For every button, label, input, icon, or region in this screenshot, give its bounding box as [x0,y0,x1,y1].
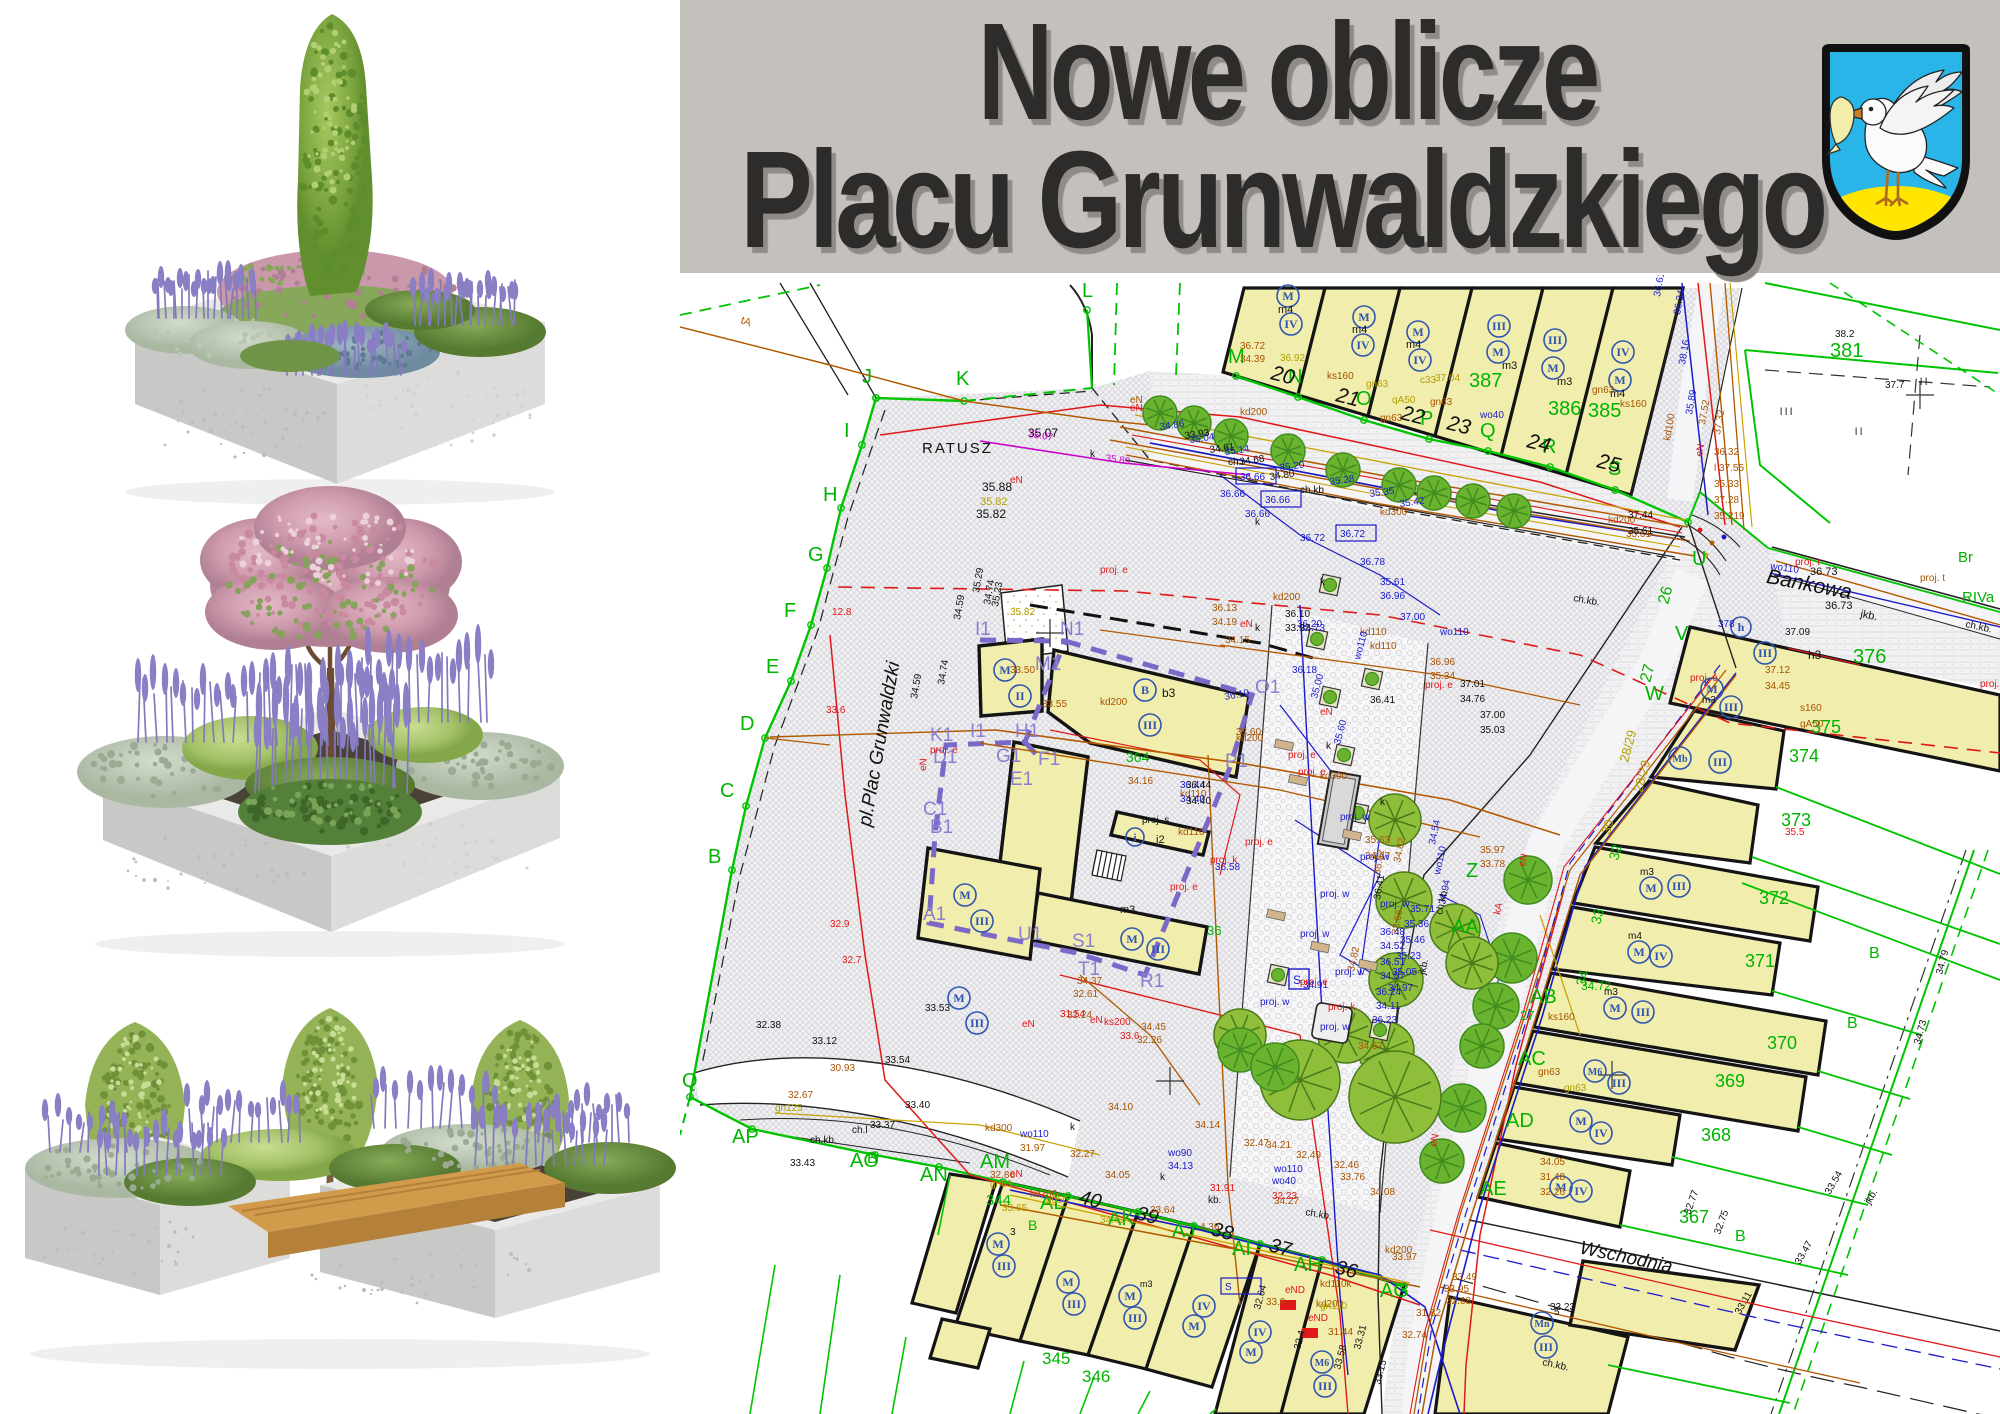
svg-text:proj. t: proj. t [1920,573,1945,584]
svg-text:proj. e: proj. e [1100,565,1128,576]
svg-text:C: C [720,780,734,802]
svg-text:33.92: 33.92 [1285,623,1310,634]
svg-text:III: III [1151,942,1165,956]
svg-text:G: G [808,544,824,566]
svg-text:346: 346 [1082,1367,1110,1386]
svg-text:36.18: 36.18 [1292,665,1317,676]
svg-text:m3: m3 [1120,904,1135,916]
svg-text:K1: K1 [930,725,953,746]
svg-text:wo110: wo110 [1019,1129,1049,1140]
svg-text:32.26: 32.26 [1137,1035,1162,1046]
svg-text:33.55: 33.55 [1042,699,1067,710]
svg-text:M1: M1 [1035,654,1061,675]
svg-text:ch.kb: ch.kb [1300,485,1324,496]
svg-text:AB: AB [1530,986,1557,1008]
svg-text:34.76: 34.76 [1460,694,1485,705]
svg-text:32.75: 32.75 [1712,1208,1731,1236]
svg-text:proj. k: proj. k [1210,855,1238,866]
svg-text:l l l: l l l [1780,407,1792,418]
svg-text:33.54: 33.54 [885,1055,910,1066]
svg-text:AN: AN [920,1164,948,1186]
svg-text:RATUSZ: RATUSZ [922,440,993,457]
svg-text:33.78: 33.78 [1480,859,1505,870]
svg-text:35.82: 35.82 [976,507,1006,521]
svg-text:33.97: 33.97 [1392,1252,1417,1263]
svg-text:B: B [1869,945,1880,962]
svg-text:M: M [1547,361,1558,375]
svg-text:B: B [708,846,721,868]
svg-text:34.45: 34.45 [1141,1022,1166,1033]
svg-text:m3: m3 [1702,695,1716,706]
svg-text:I1: I1 [970,721,986,742]
svg-text:32.26: 32.26 [1540,1187,1565,1198]
svg-text:345: 345 [1042,1349,1070,1368]
svg-text:III: III [1758,646,1772,660]
svg-text:B: B [1141,683,1149,697]
svg-text:32.68: 32.68 [1446,1296,1471,1307]
svg-text:33.50: 33.50 [1010,665,1035,676]
svg-text:37.7: 37.7 [1885,380,1905,391]
svg-text:kb.: kb. [1208,1195,1221,1206]
svg-text:M: M [1609,1001,1620,1015]
svg-text:34.57: 34.57 [1380,971,1405,982]
svg-text:37.00: 37.00 [1480,710,1505,721]
svg-text:K: K [956,368,970,390]
svg-text:II: II [1015,689,1025,703]
svg-text:eN: eN [1694,443,1707,458]
svg-text:III: III [1492,319,1506,333]
svg-text:35.88: 35.88 [982,480,1012,494]
svg-text:ks160: ks160 [1327,371,1354,382]
svg-text:proj. w: proj. w [1320,889,1350,900]
svg-text:370: 370 [1767,1033,1797,1053]
svg-text:381: 381 [1830,340,1863,362]
svg-text:B1: B1 [930,817,953,838]
svg-text:35.03: 35.03 [1480,725,1505,736]
svg-text:33.6: 33.6 [826,705,846,716]
svg-text:R1: R1 [1140,971,1164,992]
svg-text:kd200: kd200 [1273,592,1301,603]
svg-text:34.67: 34.67 [1358,1041,1383,1052]
svg-text:364: 364 [1126,749,1150,765]
svg-text:M6: M6 [1315,1358,1329,1369]
svg-text:h: h [1738,620,1745,634]
svg-text:proj. w: proj. w [1360,852,1390,863]
svg-text:33.12: 33.12 [812,1036,837,1047]
svg-text:P1: P1 [1225,751,1248,772]
svg-text:35.33: 35.33 [1714,479,1739,490]
svg-text:M: M [1124,1289,1135,1303]
svg-text:proj. e: proj. e [930,745,958,756]
svg-text:U1: U1 [1018,924,1042,945]
svg-text:wo110: wo110 [1439,627,1469,638]
svg-text:proj. e: proj. e [1425,680,1453,691]
svg-text:33.6: 33.6 [1120,1031,1140,1042]
svg-text:S1: S1 [1072,931,1095,952]
svg-text:qA50: qA50 [1392,395,1416,406]
svg-text:proj. w: proj. w [1260,997,1290,1008]
svg-text:36.72: 36.72 [1300,533,1325,544]
svg-text:M: M [1614,373,1625,387]
svg-text:ks160: ks160 [1620,399,1647,410]
svg-text:33.65: 33.65 [1002,1203,1027,1214]
svg-text:Mn: Mn [1535,1319,1550,1330]
svg-text:3: 3 [1010,1227,1016,1238]
svg-text:378: 378 [1718,619,1735,630]
svg-text:31.44: 31.44 [1328,1327,1353,1338]
svg-text:wo40: wo40 [1479,410,1504,421]
svg-text:B: B [1847,1015,1858,1032]
svg-text:kd110: kd110 [1370,641,1397,652]
svg-text:E: E [766,656,779,678]
svg-text:proj. e: proj. e [1288,750,1316,761]
svg-text:III: III [1636,1005,1650,1019]
svg-text:Q: Q [682,1070,698,1092]
svg-text:32.46: 32.46 [1334,1160,1359,1171]
svg-text:gn125: gn125 [775,1103,803,1114]
svg-text:s160: s160 [1800,703,1822,714]
svg-text:tA: tA [796,275,888,278]
svg-text:371: 371 [1745,951,1775,971]
svg-text:proj. e: proj. e [1690,673,1718,684]
svg-text:proj. w: proj. w [1320,1022,1350,1033]
svg-text:34.42: 34.42 [1100,1215,1125,1226]
svg-text:37.12: 37.12 [1765,665,1790,676]
svg-text:36.78: 36.78 [1360,557,1385,568]
svg-text:l l: l l [1855,427,1862,438]
svg-text:c33: c33 [1420,375,1437,386]
svg-text:E1: E1 [1010,769,1033,790]
svg-text:M: M [1492,345,1503,359]
svg-text:gn63: gn63 [1564,1083,1587,1094]
svg-text:m3: m3 [1557,376,1572,388]
svg-text:eND: eND [1285,1285,1305,1296]
svg-text:31.82: 31.82 [1416,1308,1441,1319]
svg-text:W: W [1645,683,1664,705]
svg-text:33.60: 33.60 [1236,727,1261,738]
svg-text:M6: M6 [1588,1067,1602,1078]
svg-text:376: 376 [1853,646,1886,668]
svg-text:III: III [975,914,989,928]
svg-text:O1: O1 [1255,677,1280,698]
svg-text:proj. t: proj. t [1795,557,1820,568]
svg-text:386: 386 [1548,398,1581,420]
svg-text:AG: AG [1380,1280,1409,1302]
svg-text:h3: h3 [1808,648,1822,662]
svg-text:m4: m4 [1352,324,1367,336]
svg-text:M: M [1282,289,1293,303]
svg-text:32.61: 32.61 [1073,989,1098,1000]
svg-text:33.47: 33.47 [1793,1239,1815,1267]
svg-text:G1: G1 [996,746,1021,767]
svg-text:36.13: 36.13 [1212,603,1237,614]
svg-text:36.66: 36.66 [1240,472,1265,483]
svg-text:34.52: 34.52 [1380,941,1405,952]
svg-text:34.11: 34.11 [1376,1001,1401,1012]
svg-text:kd200: kd200 [1240,407,1268,418]
svg-text:IV: IV [1413,353,1427,367]
svg-text:ch.kb.: ch.kb. [810,1135,837,1146]
svg-text:III: III [1067,1297,1081,1311]
svg-text:35.5: 35.5 [1785,827,1805,838]
svg-text:12.8: 12.8 [832,607,852,618]
svg-text:35.36: 35.36 [1404,919,1429,930]
svg-text:36: 36 [1207,923,1221,938]
svg-text:37.01: 37.01 [1460,679,1485,690]
svg-text:36.92: 36.92 [1280,353,1305,364]
svg-text:31.97: 31.97 [1020,1143,1045,1154]
svg-text:33.37: 33.37 [870,1120,895,1131]
svg-text:36.44: 36.44 [1186,780,1211,791]
svg-text:gn63: gn63 [1430,397,1453,408]
svg-text:M: M [1358,310,1369,324]
svg-text:M: M [999,663,1010,677]
svg-text:M: M [1706,682,1717,696]
svg-text:eN: eN [1010,475,1023,486]
svg-text:IV: IV [1616,345,1630,359]
svg-text:36.73: 36.73 [1825,600,1853,612]
svg-text:kd110: kd110 [1178,827,1205,838]
svg-text:M: M [1126,932,1137,946]
svg-text:34.40: 34.40 [1186,796,1211,807]
svg-text:eN: eN [1090,1015,1103,1026]
svg-text:IV: IV [1594,1126,1608,1140]
svg-text:33.53: 33.53 [925,1003,950,1014]
svg-text:36.72: 36.72 [1240,341,1265,352]
svg-text:38.2: 38.2 [1835,329,1855,340]
svg-text:proj. w: proj. w [1380,899,1410,910]
svg-text:34.16: 34.16 [1128,776,1153,787]
svg-text:gn63: gn63 [1538,1067,1561,1078]
svg-text:M: M [959,888,970,902]
svg-text:III: III [970,1016,984,1030]
svg-text:35.61: 35.61 [1380,577,1405,588]
svg-text:32.67: 32.67 [788,1090,813,1101]
svg-text:34.45: 34.45 [1765,681,1790,692]
svg-text:L: L [1082,280,1093,302]
svg-text:ks200: ks200 [1104,1017,1131,1028]
svg-text:AD: AD [1506,1110,1534,1132]
svg-text:4.36: 4.36 [1200,1222,1220,1233]
svg-text:374: 374 [1789,746,1819,766]
svg-text:36.32: 36.32 [1714,447,1739,458]
svg-text:proj. e: proj. e [1170,882,1198,893]
svg-text:34.15: 34.15 [1225,635,1250,646]
svg-text:32.7: 32.7 [842,955,862,966]
svg-text:M: M [1188,1319,1199,1333]
svg-text:M: M [1062,1275,1073,1289]
svg-text:33.9: 33.9 [1266,1297,1286,1308]
svg-text:m3: m3 [1640,867,1654,878]
svg-text:AJ: AJ [1172,1220,1195,1242]
svg-text:385: 385 [1588,400,1621,422]
svg-text:36.24: 36.24 [1376,987,1401,998]
svg-text:IV: IV [1574,1184,1588,1198]
svg-text:M: M [1633,945,1644,959]
svg-text:36.66: 36.66 [1220,489,1245,500]
svg-text:Br: Br [1958,549,1973,566]
svg-text:proj. e: proj. e [1980,679,2000,690]
svg-text:gn63: gn63 [1380,413,1403,424]
svg-text:33.49: 33.49 [1452,1272,1477,1283]
svg-text:36.41: 36.41 [1370,695,1395,706]
svg-text:gn110: gn110 [1320,1301,1348,1312]
svg-text:proj. e: proj. e [1245,837,1273,848]
svg-text:m3: m3 [1140,1279,1153,1289]
svg-text:N1: N1 [1060,619,1084,640]
svg-text:m3: m3 [1604,987,1618,998]
svg-text:gA50: gA50 [1800,719,1824,730]
svg-text:b3: b3 [1162,686,1176,700]
svg-text:AP: AP [732,1126,759,1148]
svg-text:33.76: 33.76 [1340,1172,1365,1183]
svg-text:M: M [992,1237,1003,1251]
svg-text:31.48: 31.48 [1540,1172,1565,1183]
svg-text:32.27: 32.27 [1070,1149,1095,1160]
svg-text:34.79: 34.79 [1934,948,1951,975]
svg-text:H: H [823,484,837,506]
svg-text:gn63: gn63 [990,1179,1013,1190]
svg-text:32.47: 32.47 [1244,1138,1269,1149]
svg-text:369: 369 [1715,1071,1745,1091]
svg-text:34.05: 34.05 [1540,1157,1565,1168]
svg-text:U: U [1692,548,1706,570]
svg-text:m4: m4 [1628,931,1642,942]
svg-text:i2: i2 [1156,834,1165,846]
svg-text:m3: m3 [1502,360,1517,372]
svg-text:368: 368 [1701,1125,1731,1145]
svg-text:36.66: 36.66 [1265,495,1290,506]
svg-text:36.72: 36.72 [1340,529,1365,540]
svg-text:S: S [1293,973,1301,987]
svg-text:III: III [1318,1379,1332,1393]
svg-text:IV: IV [1356,338,1370,352]
svg-text:32.38: 32.38 [756,1020,781,1031]
svg-text:S: S [1225,1282,1232,1293]
svg-text:33.95: 33.95 [1444,1284,1469,1295]
svg-text:32.9: 32.9 [830,919,850,930]
svg-text:34.21: 34.21 [1266,1140,1291,1151]
svg-text:eND: eND [1308,1313,1328,1324]
svg-text:AA: AA [1452,916,1479,938]
svg-text:34.10: 34.10 [1108,1102,1133,1113]
svg-text:37.09: 37.09 [1785,627,1810,638]
svg-text:H1: H1 [1015,721,1039,742]
svg-text:D: D [740,713,754,735]
svg-text:eN: eN [1022,1019,1035,1030]
svg-text:proj. e: proj. e [1300,977,1328,988]
svg-text:III: III [1548,333,1562,347]
svg-text:35.71: 35.71 [1410,904,1435,915]
svg-text:III: III [1724,700,1738,714]
svg-text:37.00: 37.00 [1400,612,1425,623]
svg-text:l l: l l [1920,377,1927,388]
svg-text:M: M [1575,1114,1586,1128]
svg-text:34.05: 34.05 [1105,1170,1130,1181]
svg-text:37.04: 37.04 [1435,373,1460,384]
svg-text:III: III [997,1259,1011,1273]
svg-text:36.96: 36.96 [1380,591,1405,602]
svg-text:35.82: 35.82 [1010,607,1035,618]
svg-text:AH: AH [1294,1254,1322,1276]
svg-text:M: M [953,991,964,1005]
svg-text:m4: m4 [1278,304,1293,316]
svg-text:RIVa: RIVa [1962,589,1995,606]
svg-text:31.91: 31.91 [1210,1183,1235,1194]
svg-text:35.82: 35.82 [980,496,1008,508]
svg-text:B: B [867,1150,878,1167]
svg-text:34.19: 34.19 [1212,617,1237,628]
svg-text:eN: eN [918,758,929,771]
svg-text:35.97: 35.97 [1480,845,1505,856]
svg-text:F1: F1 [1038,749,1060,770]
svg-text:32.74: 32.74 [1402,1330,1427,1341]
svg-text:Z: Z [1466,860,1478,882]
svg-text:M: M [1245,1345,1256,1359]
svg-text:34.37: 34.37 [1077,976,1102,987]
svg-text:kd300: kd300 [985,1123,1013,1134]
svg-text:V: V [1675,623,1689,645]
svg-text:36.23: 36.23 [1372,1015,1397,1026]
svg-text:27: 27 [1520,1008,1534,1023]
svg-text:III: III [1672,879,1686,893]
svg-text:I: I [844,420,850,442]
svg-text:l 37.55: l 37.55 [1714,463,1744,474]
svg-text:31.54: 31.54 [1060,1009,1085,1020]
svg-text:36.10: 36.10 [1285,609,1310,620]
svg-text:32.23: 32.23 [1272,1191,1297,1202]
svg-text:35.219: 35.219 [1714,511,1745,522]
svg-text:ks160: ks160 [1548,1012,1575,1023]
svg-text:M: M [1412,325,1423,339]
svg-text:35.61: 35.61 [1628,526,1653,537]
svg-text:i: i [1133,832,1136,844]
svg-text:35.63: 35.63 [1365,835,1390,846]
svg-text:proj. s.: proj. s. [1142,815,1172,826]
svg-text:B: B [1735,1228,1746,1245]
svg-text:34.14: 34.14 [1195,1120,1220,1131]
svg-text:C1: C1 [923,799,947,820]
svg-text:proj. w: proj. w [1335,967,1365,978]
svg-text:J: J [862,366,872,388]
svg-text:wo90: wo90 [1167,1148,1192,1159]
svg-text:M: M [1645,881,1656,895]
svg-text:I1: I1 [975,619,991,640]
svg-text:34.13: 34.13 [1168,1161,1193,1172]
svg-text:III: III [1612,1076,1626,1090]
svg-text:33.40: 33.40 [905,1100,930,1111]
svg-text:AI: AI [1232,1238,1251,1260]
svg-text:tA: tA [739,315,753,330]
svg-text:proj. w: proj. w [1300,929,1330,940]
svg-text:kd200: kd200 [1100,697,1128,708]
svg-text:F: F [784,600,796,622]
svg-text:gn63: gn63 [1592,385,1615,396]
svg-text:eN: eN [1320,707,1333,718]
svg-text:372: 372 [1759,888,1789,908]
svg-text:36.48: 36.48 [1380,927,1405,938]
svg-text:proj. e: proj. e [1298,767,1326,778]
svg-text:30.93: 30.93 [830,1063,855,1074]
svg-text:IV: IV [1284,317,1298,331]
svg-text:387: 387 [1469,370,1502,392]
svg-text:eN: eN [1130,403,1143,414]
svg-text:B: B [1028,1217,1037,1233]
svg-text:AE: AE [1480,1178,1507,1200]
svg-text:37.28: 37.28 [1714,495,1739,506]
svg-text:IV: IV [1253,1325,1267,1339]
svg-text:IV: IV [1654,949,1668,963]
